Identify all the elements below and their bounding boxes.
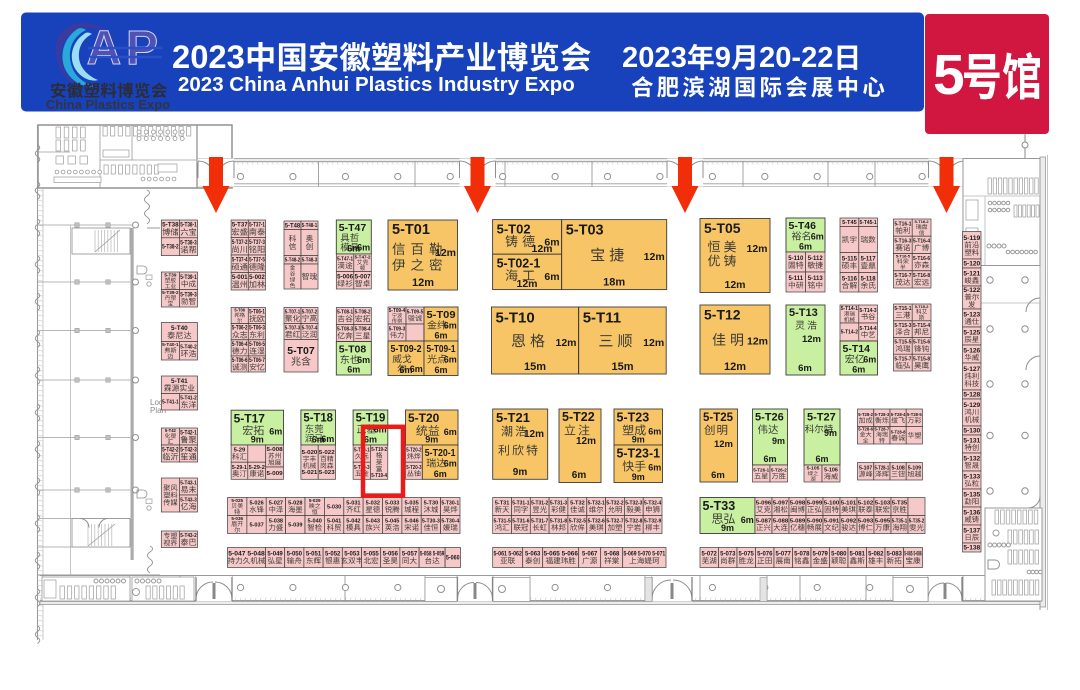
svg-text:6m: 6m — [269, 426, 282, 436]
svg-text:12m: 12m — [724, 361, 746, 373]
svg-text:5-047 5-048: 5-047 5-048 — [228, 552, 265, 558]
svg-text:5-T48-3: 5-T48-3 — [302, 258, 317, 264]
svg-text:5-050: 5-050 — [287, 552, 303, 558]
svg-text:5-T05: 5-T05 — [704, 220, 741, 236]
svg-text:5-122: 5-122 — [963, 287, 980, 294]
svg-text:5-052: 5-052 — [325, 552, 341, 558]
svg-text:5-103: 5-103 — [875, 501, 890, 507]
svg-text:5-109: 5-109 — [908, 465, 921, 471]
svg-text:5-133: 5-133 — [963, 473, 980, 480]
svg-text:5-006: 5-006 — [337, 273, 353, 280]
svg-text:5-089: 5-089 — [790, 519, 805, 525]
svg-text:5-T48: 5-T48 — [285, 222, 301, 229]
svg-text:5-110: 5-110 — [788, 256, 804, 262]
svg-text:5-T37-2: 5-T37-2 — [232, 240, 248, 246]
svg-text:5-T32-4: 5-T32-4 — [644, 501, 662, 507]
svg-text:5-T03: 5-T03 — [566, 223, 604, 239]
svg-text:5-058 5-059: 5-058 5-059 — [420, 552, 445, 558]
svg-text:5-022: 5-022 — [319, 450, 335, 456]
svg-text:5-T39-2: 5-T39-2 — [162, 290, 179, 295]
svg-text:6m: 6m — [434, 365, 447, 375]
svg-text:5-027: 5-027 — [269, 501, 283, 507]
svg-text:5-T39-3: 5-T39-3 — [180, 292, 197, 298]
svg-text:5-T15-3: 5-T15-3 — [894, 323, 911, 329]
svg-text:5-075: 5-075 — [739, 552, 755, 558]
svg-text:5-129: 5-129 — [963, 402, 980, 409]
svg-text:6m: 6m — [444, 321, 457, 331]
svg-text:12m: 12m — [516, 278, 537, 290]
svg-text:5-026: 5-026 — [249, 501, 263, 507]
svg-text:5-106: 5-106 — [824, 468, 838, 474]
svg-text:5-T43-1: 5-T43-1 — [180, 480, 197, 486]
svg-text:5-T43-3: 5-T43-3 — [180, 497, 197, 503]
svg-text:5-069 5-070 5-071: 5-069 5-070 5-071 — [624, 552, 666, 558]
svg-text:5-T37-4: 5-T37-4 — [232, 258, 248, 264]
svg-text:9m: 9m — [632, 435, 645, 445]
svg-text:5-038: 5-038 — [269, 519, 283, 525]
svg-text:5-111: 5-111 — [788, 276, 803, 282]
svg-text:5-T47: 5-T47 — [339, 222, 367, 234]
svg-text:5-T16-1: 5-T16-1 — [894, 222, 911, 228]
svg-text:6m: 6m — [444, 459, 457, 469]
svg-text:6m: 6m — [444, 427, 457, 437]
svg-text:5-T41-1: 5-T41-1 — [162, 400, 179, 406]
svg-text:5-29-2: 5-29-2 — [249, 465, 265, 471]
svg-text:5-063: 5-063 — [525, 552, 541, 558]
svg-text:5-127: 5-127 — [963, 366, 980, 373]
svg-text:5-T48-1: 5-T48-1 — [302, 223, 317, 229]
svg-text:5-T14-3: 5-T14-3 — [860, 308, 877, 314]
svg-text:5-T15-6: 5-T15-6 — [913, 340, 930, 346]
svg-text:5-T20: 5-T20 — [408, 411, 440, 425]
svg-text:9m: 9m — [513, 467, 528, 478]
svg-text:5-T31-3: 5-T31-3 — [550, 501, 567, 507]
svg-text:5-T22: 5-T22 — [562, 410, 595, 424]
svg-text:5-030: 5-030 — [327, 504, 341, 510]
svg-text:5-132: 5-132 — [963, 455, 980, 462]
svg-text:5-101: 5-101 — [841, 501, 856, 507]
svg-text:5-130: 5-130 — [963, 428, 980, 435]
svg-text:5-031: 5-031 — [346, 501, 360, 507]
svg-text:5-T06-4: 5-T06-4 — [232, 342, 248, 348]
svg-text:5-137: 5-137 — [963, 527, 980, 534]
svg-text:5-T16-5: 5-T16-5 — [896, 253, 911, 258]
svg-text:5-108: 5-108 — [891, 465, 904, 471]
svg-text:5-118: 5-118 — [861, 276, 877, 282]
svg-text:5-T11: 5-T11 — [583, 309, 621, 326]
svg-text:5-025: 5-025 — [231, 498, 243, 503]
svg-text:6m: 6m — [852, 365, 865, 375]
svg-text:5-T46: 5-T46 — [789, 220, 817, 232]
svg-text:5-123: 5-123 — [963, 311, 980, 318]
svg-text:5-T32-5: 5-T32-5 — [569, 519, 586, 525]
svg-text:12m: 12m — [412, 277, 434, 289]
svg-text:5-087: 5-087 — [756, 519, 771, 525]
svg-text:5-T32-8: 5-T32-8 — [625, 519, 642, 525]
svg-text:5-033: 5-033 — [385, 501, 399, 507]
svg-text:5-032: 5-032 — [366, 501, 380, 507]
svg-text:5-098: 5-098 — [790, 501, 805, 507]
svg-text:5-T14-4: 5-T14-4 — [860, 326, 877, 332]
svg-text:5-T30-3: 5-T30-3 — [422, 519, 440, 525]
svg-text:5-043: 5-043 — [366, 519, 380, 525]
svg-text:5-T06-1: 5-T06-1 — [249, 310, 265, 316]
svg-text:5-T39: 5-T39 — [164, 272, 176, 277]
svg-text:5-T16-8: 5-T16-8 — [913, 273, 930, 279]
svg-text:5-T16-3: 5-T16-3 — [894, 239, 911, 245]
svg-text:5-T28-3: 5-T28-3 — [875, 412, 890, 418]
svg-text:5-028: 5-028 — [288, 501, 302, 507]
svg-text:5: 5 — [933, 43, 965, 107]
svg-text:6m: 6m — [648, 463, 661, 473]
svg-text:9m: 9m — [425, 435, 438, 445]
svg-text:5-T41: 5-T41 — [171, 378, 188, 385]
svg-text:5-T41-2: 5-T41-2 — [180, 396, 197, 402]
svg-text:5-077: 5-077 — [776, 552, 792, 558]
svg-text:5-T32-7: 5-T32-7 — [606, 519, 623, 525]
svg-text:5-T06-7: 5-T06-7 — [249, 358, 265, 364]
svg-text:5-023: 5-023 — [319, 470, 336, 476]
svg-text:12m: 12m — [531, 243, 552, 255]
svg-text:5-T42-3: 5-T42-3 — [180, 447, 197, 453]
svg-text:5-T38: 5-T38 — [162, 223, 179, 229]
svg-text:6m: 6m — [863, 355, 876, 365]
svg-text:5-T40-2: 5-T40-2 — [180, 345, 197, 351]
svg-text:5-T37: 5-T37 — [232, 223, 248, 229]
svg-text:6m: 6m — [312, 435, 325, 445]
svg-text:5-T27: 5-T27 — [807, 412, 836, 424]
svg-text:5-T48-2: 5-T48-2 — [285, 258, 300, 264]
svg-text:12m: 12m — [576, 436, 596, 447]
svg-text:6m: 6m — [434, 469, 447, 479]
svg-text:12m: 12m — [644, 251, 665, 263]
svg-text:5-T02: 5-T02 — [497, 221, 531, 236]
svg-text:5-096: 5-096 — [756, 501, 771, 507]
svg-text:6m: 6m — [434, 331, 447, 341]
svg-text:5-008: 5-008 — [267, 447, 284, 453]
svg-text:6m: 6m — [544, 271, 559, 283]
svg-text:5-121: 5-121 — [963, 270, 980, 277]
svg-text:5-T28-8: 5-T28-8 — [891, 429, 906, 435]
svg-text:5-T42-1: 5-T42-1 — [180, 430, 197, 436]
svg-text:2023: 2023 — [172, 38, 245, 75]
svg-text:5-119: 5-119 — [963, 235, 980, 242]
svg-text:5-061 5-062: 5-061 5-062 — [494, 552, 523, 558]
svg-text:5-126: 5-126 — [963, 347, 980, 354]
svg-text:5-T31-2: 5-T31-2 — [531, 501, 548, 507]
svg-text:5-T09-5: 5-T09-5 — [407, 310, 424, 316]
svg-text:5-T47-2: 5-T47-2 — [355, 254, 371, 259]
svg-text:5-113: 5-113 — [808, 276, 824, 282]
svg-text:5-T02-1: 5-T02-1 — [497, 256, 541, 270]
svg-text:5-T21: 5-T21 — [496, 410, 530, 425]
svg-text:5-T08: 5-T08 — [339, 343, 367, 355]
svg-text:5-T38-3: 5-T38-3 — [180, 240, 197, 246]
svg-text:5-T40: 5-T40 — [171, 325, 188, 332]
svg-text:5-T15-4: 5-T15-4 — [913, 323, 930, 329]
svg-text:5-T07-2: 5-T07-2 — [302, 309, 317, 315]
svg-text:5-T06: 5-T06 — [234, 308, 245, 313]
svg-text:5-080: 5-080 — [831, 552, 847, 558]
svg-text:5-T20-2: 5-T20-2 — [406, 448, 421, 454]
svg-text:5-T15-7: 5-T15-7 — [894, 357, 911, 363]
svg-text:5-T18: 5-T18 — [303, 413, 333, 425]
svg-text:5-060: 5-060 — [446, 556, 460, 562]
svg-text:12m: 12m — [746, 243, 767, 255]
svg-text:5-T20-1: 5-T20-1 — [425, 447, 456, 459]
svg-text:6m: 6m — [741, 515, 754, 525]
svg-text:5-T06-2: 5-T06-2 — [232, 326, 248, 332]
svg-text:5-T09-1: 5-T09-1 — [427, 343, 456, 355]
svg-text:6m: 6m — [763, 454, 776, 464]
svg-text:5-T20-3: 5-T20-3 — [406, 465, 421, 471]
svg-text:9: 9 — [715, 42, 731, 74]
svg-text:5-T32-1: 5-T32-1 — [588, 501, 605, 507]
svg-text:6m: 6m — [798, 363, 812, 374]
svg-text:5-068: 5-068 — [604, 552, 620, 558]
svg-text:2023: 2023 — [622, 42, 687, 74]
svg-text:5-T47-1: 5-T47-1 — [337, 257, 353, 263]
svg-text:20-22: 20-22 — [759, 42, 833, 74]
svg-text:5-T28-1: 5-T28-1 — [875, 465, 890, 471]
svg-text:5-T12: 5-T12 — [704, 307, 741, 323]
svg-text:5-055: 5-055 — [363, 552, 379, 558]
svg-text:12m: 12m — [555, 337, 576, 349]
svg-text:12m: 12m — [643, 337, 664, 349]
svg-text:5-120: 5-120 — [963, 261, 980, 268]
svg-text:5-T19-2: 5-T19-2 — [371, 447, 387, 453]
svg-text:5-T37-5: 5-T37-5 — [249, 258, 265, 264]
svg-text:5-29: 5-29 — [234, 448, 246, 454]
svg-text:5-076: 5-076 — [757, 552, 773, 558]
svg-text:5-115: 5-115 — [842, 257, 858, 263]
svg-text:5-T16-4: 5-T16-4 — [913, 239, 930, 245]
svg-text:5-T28-6: 5-T28-6 — [858, 427, 873, 432]
svg-text:5-020: 5-020 — [302, 450, 318, 456]
svg-text:12m: 12m — [524, 429, 544, 440]
svg-text:5-T07-3: 5-T07-3 — [285, 325, 300, 331]
svg-text:18m: 18m — [603, 277, 625, 289]
svg-text:5-138: 5-138 — [963, 545, 980, 552]
svg-text:5-T19: 5-T19 — [356, 413, 386, 425]
svg-text:5-T39-1: 5-T39-1 — [180, 275, 197, 281]
svg-text:5-T32-2: 5-T32-2 — [606, 501, 623, 507]
svg-text:5-041: 5-041 — [327, 519, 341, 525]
svg-text:5-082: 5-082 — [868, 552, 884, 558]
svg-text:5-T32-9: 5-T32-9 — [644, 519, 661, 525]
svg-text:5-T15-1: 5-T15-1 — [894, 306, 911, 312]
svg-text:5-045: 5-045 — [385, 519, 399, 525]
svg-text:5-039: 5-039 — [288, 522, 302, 528]
svg-text:5-035: 5-035 — [404, 501, 418, 507]
svg-text:5-T08-3: 5-T08-3 — [337, 327, 353, 333]
svg-text:5-085 5-086: 5-085 5-086 — [904, 552, 922, 558]
svg-text:12m: 12m — [714, 439, 733, 450]
svg-text:6m: 6m — [648, 427, 661, 437]
svg-text:5-T31-1: 5-T31-1 — [512, 501, 529, 507]
svg-text:5-T15-5: 5-T15-5 — [894, 340, 911, 346]
svg-text:5-051: 5-051 — [306, 552, 322, 558]
svg-text:5-T31-5: 5-T31-5 — [494, 519, 511, 525]
svg-text:5-T07-1: 5-T07-1 — [285, 309, 300, 315]
svg-text:5-T09: 5-T09 — [427, 309, 456, 321]
svg-text:5-097: 5-097 — [773, 501, 788, 507]
svg-text:6m: 6m — [347, 365, 360, 375]
svg-text:15m: 15m — [611, 361, 633, 373]
svg-text:5-T06-6: 5-T06-6 — [232, 358, 248, 364]
svg-text:5-T07: 5-T07 — [287, 345, 315, 357]
svg-text:5-T19-4: 5-T19-4 — [371, 473, 387, 479]
svg-text:5-092: 5-092 — [841, 519, 856, 525]
svg-text:6m: 6m — [815, 454, 828, 464]
svg-text:5-T35-2: 5-T35-2 — [909, 519, 924, 525]
svg-text:5-073: 5-073 — [720, 552, 736, 558]
svg-text:2023 China Anhui Plastics Indu: 2023 China Anhui Plastics Industry Expo — [178, 73, 575, 96]
svg-text:5-112: 5-112 — [808, 256, 824, 262]
svg-text:5-T38-1: 5-T38-1 — [180, 223, 197, 229]
svg-text:5-057: 5-057 — [402, 552, 418, 558]
svg-text:5-T30-1: 5-T30-1 — [441, 501, 459, 507]
svg-text:5-T06-5: 5-T06-5 — [249, 342, 265, 348]
svg-text:5-T32-3: 5-T32-3 — [625, 501, 642, 507]
svg-text:5-T42: 5-T42 — [165, 428, 177, 433]
svg-text:5-T23-1: 5-T23-1 — [617, 447, 661, 461]
svg-text:5-T16-6: 5-T16-6 — [913, 256, 930, 262]
svg-text:5-T38-2: 5-T38-2 — [162, 245, 179, 251]
svg-text:5-T26-1: 5-T26-1 — [753, 467, 769, 473]
svg-text:6m: 6m — [364, 435, 377, 445]
svg-text:5-T14-1: 5-T14-1 — [841, 306, 858, 312]
svg-text:6m: 6m — [444, 355, 457, 365]
svg-text:6m: 6m — [572, 470, 587, 481]
svg-text:9m: 9m — [824, 428, 837, 438]
svg-text:5-T25: 5-T25 — [703, 412, 734, 424]
svg-text:6m: 6m — [399, 365, 412, 375]
svg-text:5-T31: 5-T31 — [495, 501, 510, 507]
svg-text:5-T28-2: 5-T28-2 — [858, 412, 873, 418]
svg-text:5-090: 5-090 — [807, 519, 822, 525]
svg-text:5-T30-4: 5-T30-4 — [441, 519, 460, 525]
svg-text:6m: 6m — [799, 242, 812, 252]
svg-text:5-042: 5-042 — [346, 519, 360, 525]
svg-text:5-T43-2: 5-T43-2 — [180, 533, 197, 539]
svg-text:5-T45: 5-T45 — [842, 220, 857, 226]
svg-text:5-100: 5-100 — [824, 501, 839, 507]
svg-text:5-T09-2: 5-T09-2 — [391, 343, 422, 355]
svg-text:5-T31-6: 5-T31-6 — [512, 519, 529, 525]
svg-text:5-T28-7: 5-T28-7 — [875, 427, 890, 432]
svg-text:5-105: 5-105 — [807, 466, 820, 472]
svg-text:5-T40-1: 5-T40-1 — [162, 342, 179, 348]
svg-text:5-072: 5-072 — [702, 552, 718, 558]
svg-text:12m: 12m — [802, 334, 821, 345]
svg-text:9m: 9m — [772, 436, 785, 446]
svg-text:5-T31-8: 5-T31-8 — [550, 519, 567, 525]
svg-text:5-078: 5-078 — [794, 552, 810, 558]
svg-text:5-131: 5-131 — [963, 437, 980, 444]
svg-text:5-067: 5-067 — [582, 552, 598, 558]
svg-text:5-T26-2: 5-T26-2 — [771, 467, 787, 473]
svg-text:5-117: 5-117 — [861, 257, 877, 263]
svg-text:5-021: 5-021 — [302, 470, 319, 476]
svg-text:5-081: 5-081 — [850, 552, 866, 558]
svg-text:5-T33: 5-T33 — [703, 499, 736, 513]
svg-text:5-T07-4: 5-T07-4 — [302, 325, 317, 331]
svg-text:9m: 9m — [632, 472, 645, 482]
svg-text:5-T15-2: 5-T15-2 — [915, 304, 930, 309]
svg-text:6m: 6m — [811, 232, 824, 242]
svg-text:5-T23: 5-T23 — [617, 411, 650, 425]
svg-text:5-128: 5-128 — [963, 392, 980, 399]
svg-text:5-099: 5-099 — [807, 501, 822, 507]
svg-text:5-002: 5-002 — [249, 275, 265, 281]
svg-text:6m: 6m — [347, 244, 360, 254]
svg-text:5-125: 5-125 — [963, 329, 980, 336]
svg-text:5-091: 5-091 — [824, 519, 839, 525]
svg-text:12m: 12m — [435, 247, 456, 259]
svg-text:5-040: 5-040 — [308, 519, 322, 525]
svg-text:12m: 12m — [724, 279, 745, 291]
svg-text:China Plastics Expo: China Plastics Expo — [46, 97, 170, 112]
svg-text:5-T32-6: 5-T32-6 — [588, 519, 605, 525]
svg-text:6m: 6m — [711, 470, 725, 481]
svg-text:5-107: 5-107 — [859, 465, 872, 471]
svg-text:5-T37-1: 5-T37-1 — [249, 223, 265, 229]
svg-text:5-T35-1: 5-T35-1 — [892, 519, 907, 525]
svg-text:5-T45-1: 5-T45-1 — [860, 220, 877, 226]
svg-text:5-T42-2: 5-T42-2 — [162, 447, 179, 453]
svg-text:5-T01: 5-T01 — [392, 222, 430, 238]
svg-text:5-T09-4: 5-T09-4 — [389, 308, 406, 314]
svg-text:5-T28-4: 5-T28-4 — [891, 412, 906, 418]
svg-text:5-049: 5-049 — [267, 552, 283, 558]
svg-text:5-T14-2: 5-T14-2 — [841, 330, 858, 336]
svg-text:5-095: 5-095 — [875, 519, 890, 525]
svg-text:5-116: 5-116 — [842, 276, 858, 282]
svg-text:5-093: 5-093 — [858, 519, 873, 525]
svg-text:5-T08-4: 5-T08-4 — [355, 327, 371, 333]
svg-text:5-T17: 5-T17 — [234, 411, 266, 425]
svg-text:12m: 12m — [747, 335, 768, 347]
svg-text:5-T10: 5-T10 — [496, 309, 535, 326]
svg-text:5-056: 5-056 — [383, 552, 399, 558]
svg-text:5-053: 5-053 — [344, 552, 360, 558]
svg-text:5-029: 5-029 — [309, 498, 321, 503]
svg-text:5-083: 5-083 — [887, 552, 903, 558]
svg-text:5-T31-7: 5-T31-7 — [531, 519, 548, 525]
svg-text:5-T16-7: 5-T16-7 — [894, 273, 911, 279]
svg-text:9m: 9m — [721, 523, 734, 533]
svg-text:5-088: 5-088 — [773, 519, 788, 525]
svg-text:5-135: 5-135 — [963, 491, 980, 498]
svg-text:5-001: 5-001 — [232, 275, 248, 281]
svg-text:5-T08-2: 5-T08-2 — [355, 310, 371, 316]
svg-text:5-T35: 5-T35 — [892, 501, 907, 507]
svg-text:5-T14: 5-T14 — [843, 343, 871, 355]
svg-text:5-007: 5-007 — [355, 273, 371, 280]
svg-text:5-T09-3: 5-T09-3 — [389, 327, 406, 333]
svg-text:5-T16-2: 5-T16-2 — [915, 219, 930, 224]
svg-text:5-T32: 5-T32 — [570, 501, 585, 507]
svg-text:5-136: 5-136 — [963, 509, 980, 516]
svg-text:5-046: 5-046 — [404, 519, 418, 525]
svg-text:5-037: 5-037 — [249, 522, 263, 528]
svg-text:5-T28-5: 5-T28-5 — [907, 412, 922, 418]
svg-text:5-009: 5-009 — [267, 471, 284, 477]
svg-text:9m: 9m — [251, 435, 264, 445]
svg-text:5-T13: 5-T13 — [789, 307, 818, 319]
svg-text:15m: 15m — [524, 361, 546, 373]
